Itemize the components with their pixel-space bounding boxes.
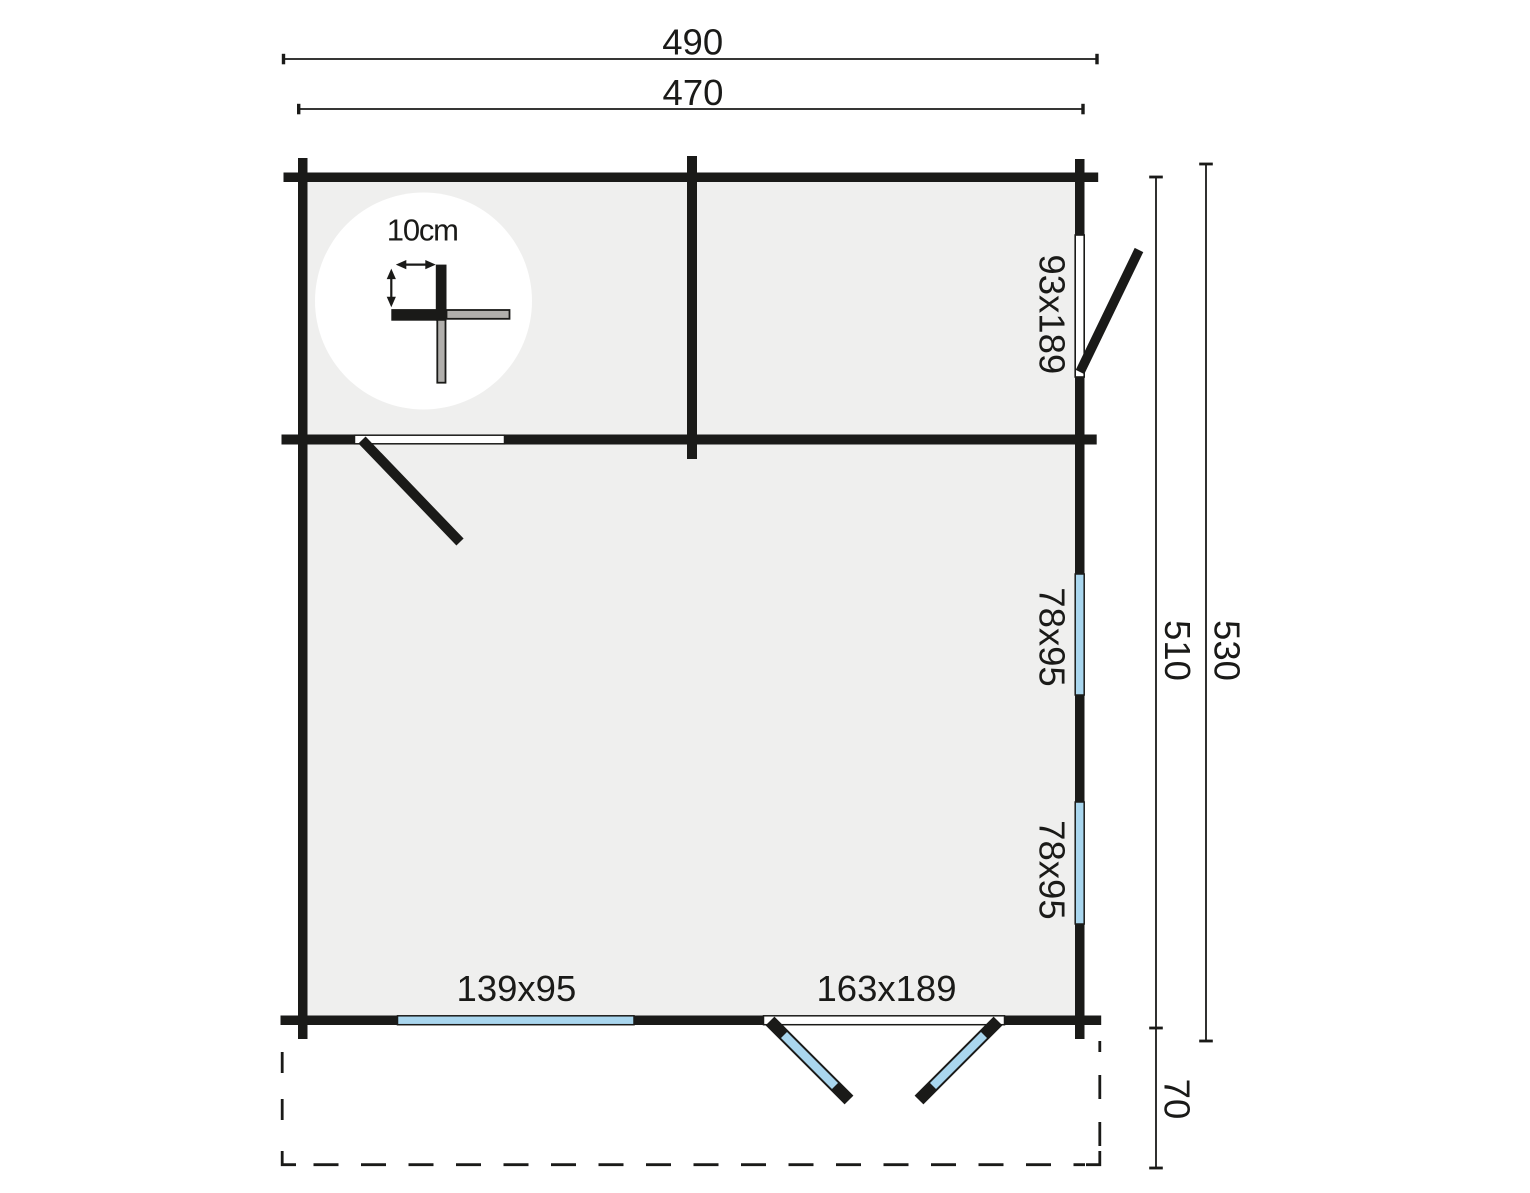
svg-text:70: 70 bbox=[1156, 1079, 1197, 1120]
svg-text:490: 490 bbox=[662, 22, 723, 63]
svg-text:530: 530 bbox=[1207, 620, 1248, 681]
svg-text:510: 510 bbox=[1157, 620, 1198, 681]
svg-text:78x95: 78x95 bbox=[1032, 587, 1073, 686]
svg-text:139x95: 139x95 bbox=[457, 968, 577, 1009]
svg-text:163x189: 163x189 bbox=[816, 968, 956, 1009]
svg-text:10cm: 10cm bbox=[387, 212, 458, 247]
svg-text:93x189: 93x189 bbox=[1032, 254, 1073, 374]
svg-text:470: 470 bbox=[663, 72, 724, 113]
svg-text:78x95: 78x95 bbox=[1032, 820, 1073, 919]
